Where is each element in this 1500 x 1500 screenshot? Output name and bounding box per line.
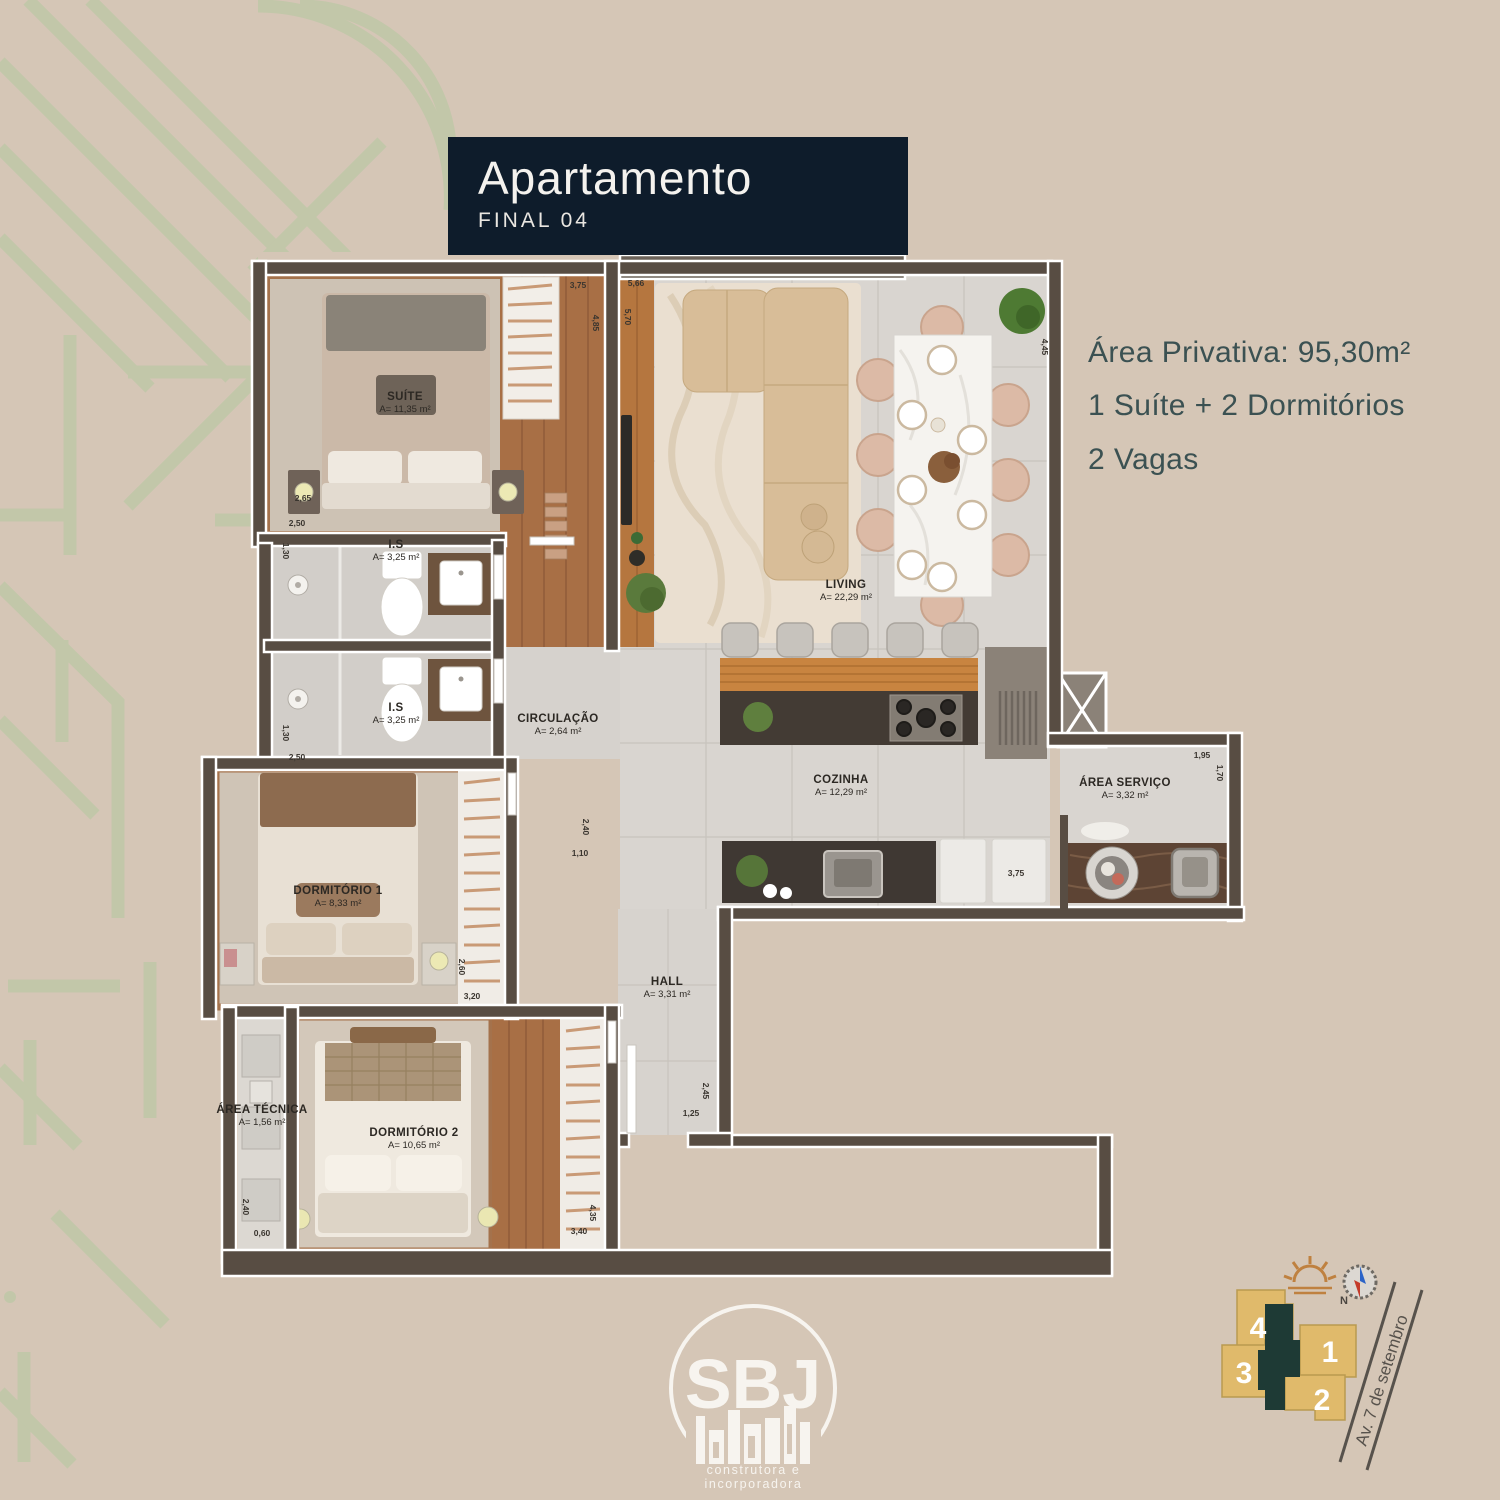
site-map: N 4 1 3 2 Av. 7 de setembro [1190,1240,1490,1500]
apartment-final-number: FINAL 04 [478,209,908,233]
sbj-logo-tagline: construtora e incorporadora [656,1463,851,1491]
sbj-logo-mark: SBJ [656,1296,851,1491]
spec-private-area: Área Privativa: 95,30m² [1088,326,1411,379]
unit-4-label: 4 [1250,1312,1267,1345]
suite-bed [288,293,524,514]
sbj-logo: SBJ construtora e incorporadora [656,1296,851,1491]
plant-living-inner [1016,305,1040,329]
sun-icon [1284,1256,1336,1293]
unit-1-label: 1 [1322,1336,1339,1369]
area-tecnica-units [242,1035,280,1221]
flyer-canvas: { "header": { "title": "Apartamento", "s… [0,0,1500,1500]
compass-icon [1344,1266,1376,1298]
sbj-logo-text: SBJ [685,1345,821,1423]
unit-2-label: 2 [1314,1384,1331,1417]
apartment-title: Apartamento [478,151,908,205]
kitchen-counter [722,839,1046,903]
spec-rooms: 1 Suíte + 2 Dormitórios [1088,379,1411,432]
unit-3-label: 3 [1236,1357,1253,1390]
header-box: Apartamento FINAL 04 [448,137,908,255]
spec-block: Área Privativa: 95,30m² 1 Suíte + 2 Dorm… [1088,326,1411,486]
spec-parking: 2 Vagas [1088,433,1411,486]
north-label: N [1340,1295,1348,1307]
dorm2-bed [290,1027,498,1237]
street-label: Av. 7 de setembro [1352,1313,1412,1449]
